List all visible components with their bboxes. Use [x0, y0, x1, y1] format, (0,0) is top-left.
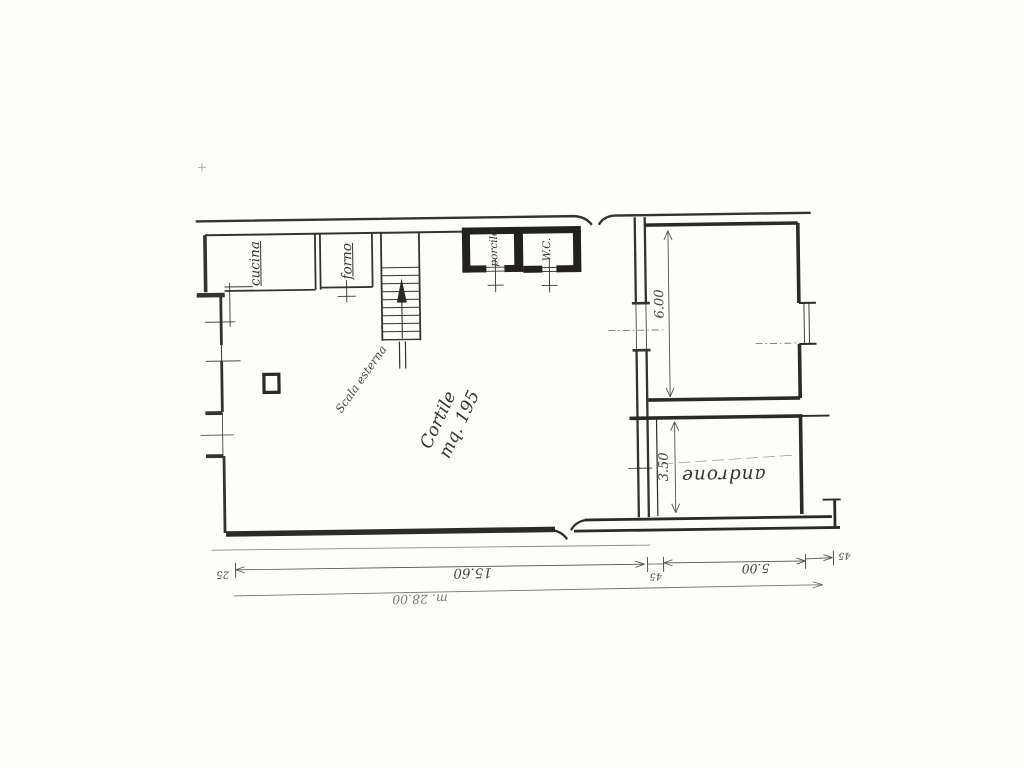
dim-line-3-50 — [671, 422, 680, 513]
cortile-pillar — [264, 374, 279, 392]
dim-text-45-left: 45 — [650, 570, 662, 581]
dim-text-6-00: 6.00 — [652, 289, 667, 318]
dim-text-45-right: 45 — [838, 550, 850, 561]
floorplan: cucina forno porcile W.C. Scala esterna … — [0, 0, 1024, 775]
room-label-wc: W.C. — [541, 238, 553, 261]
room-label-forno: forno — [339, 243, 356, 280]
dim-text-5-00: 5.00 — [742, 561, 770, 576]
rooms-porcile-wc-walls — [462, 226, 582, 274]
rooms-cucina-forno-walls — [196, 232, 465, 328]
room-label-androne: androne — [681, 464, 766, 486]
right-room-walls — [645, 223, 817, 400]
dim-line-overall — [234, 582, 823, 596]
room-label-porcile: porcile — [488, 230, 501, 267]
dim-text-25: 25 — [216, 568, 229, 579]
registration-mark — [198, 163, 206, 171]
floorplan-linework — [0, 0, 1024, 775]
dim-text-overall-28-00: m. 28.00 — [392, 591, 448, 607]
dim-text-15-60: 15.60 — [453, 564, 492, 581]
left-boundary-wall — [199, 295, 243, 534]
room-label-cucina: cucina — [247, 241, 264, 286]
dim-text-3-50: 3.50 — [656, 452, 671, 481]
bottom-boundary-wall — [211, 498, 842, 551]
scanned-floorplan-sheet: cucina forno porcile W.C. Scala esterna … — [0, 0, 1024, 768]
stair-direction-arrow — [397, 278, 407, 302]
